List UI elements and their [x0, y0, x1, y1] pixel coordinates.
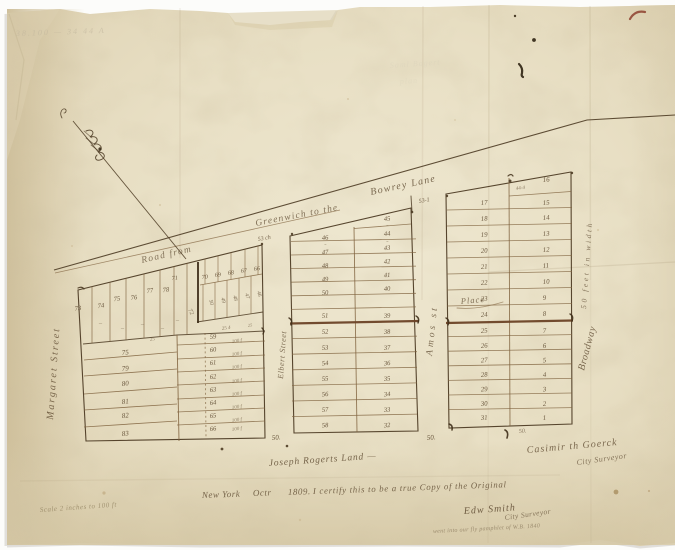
svg-text:50.: 50. [519, 428, 527, 435]
svg-text:=: = [386, 223, 389, 228]
svg-text:83: 83 [121, 429, 129, 438]
svg-text:=: = [324, 242, 327, 247]
svg-text:61: 61 [209, 359, 216, 367]
svg-text:20: 20 [481, 247, 489, 255]
svg-text:70: 70 [202, 274, 209, 281]
svg-text:21: 21 [481, 263, 488, 271]
svg-text:79: 79 [121, 364, 129, 373]
svg-text:39: 39 [383, 312, 392, 320]
svg-text:27: 27 [481, 357, 489, 365]
svg-text:15: 15 [543, 199, 551, 207]
svg-text:24: 24 [481, 311, 489, 319]
svg-text:34: 34 [383, 391, 392, 399]
svg-text:Octr: Octr [253, 487, 272, 498]
svg-text:50.: 50. [271, 433, 281, 442]
svg-text:=: = [386, 239, 389, 244]
svg-text:50.: 50. [426, 433, 436, 442]
svg-text:51: 51 [322, 312, 329, 320]
svg-text:29: 29 [481, 386, 489, 394]
svg-text:12: 12 [543, 246, 551, 254]
svg-text:17: 17 [481, 199, 489, 207]
svg-text:18: 18 [481, 215, 489, 223]
svg-text:plan: plan [399, 76, 419, 86]
svg-text:36: 36 [383, 360, 392, 368]
svg-text:28: 28 [481, 371, 489, 379]
svg-text:30: 30 [480, 400, 489, 408]
svg-text:37: 37 [383, 344, 392, 352]
svg-text:10: 10 [543, 278, 551, 286]
svg-text:22: 22 [481, 279, 489, 287]
svg-text:68: 68 [228, 270, 235, 277]
svg-text:16: 16 [543, 176, 551, 184]
svg-text:69: 69 [215, 272, 222, 279]
svg-text:80: 80 [121, 379, 129, 388]
svg-text:1: 1 [543, 415, 547, 422]
svg-text:41: 41 [384, 272, 391, 280]
svg-text:31: 31 [480, 414, 488, 422]
svg-text:1809.: 1809. [288, 486, 311, 497]
svg-text:66: 66 [254, 266, 261, 273]
svg-text:33: 33 [383, 406, 392, 414]
svg-text:13: 13 [543, 230, 551, 238]
svg-text:New York: New York [201, 489, 241, 500]
svg-text:81: 81 [121, 397, 129, 406]
svg-text:11: 11 [543, 262, 550, 270]
svg-text:19: 19 [481, 231, 489, 239]
svg-text:32: 32 [383, 422, 392, 430]
svg-text:26: 26 [481, 342, 489, 350]
svg-text:25: 25 [481, 327, 489, 335]
svg-text:35: 35 [383, 375, 392, 383]
svg-text:75: 75 [121, 348, 129, 357]
svg-text:38: 38 [383, 328, 392, 336]
svg-text:71: 71 [172, 275, 179, 282]
svg-text:82: 82 [121, 411, 129, 420]
svg-text:14: 14 [543, 214, 551, 222]
